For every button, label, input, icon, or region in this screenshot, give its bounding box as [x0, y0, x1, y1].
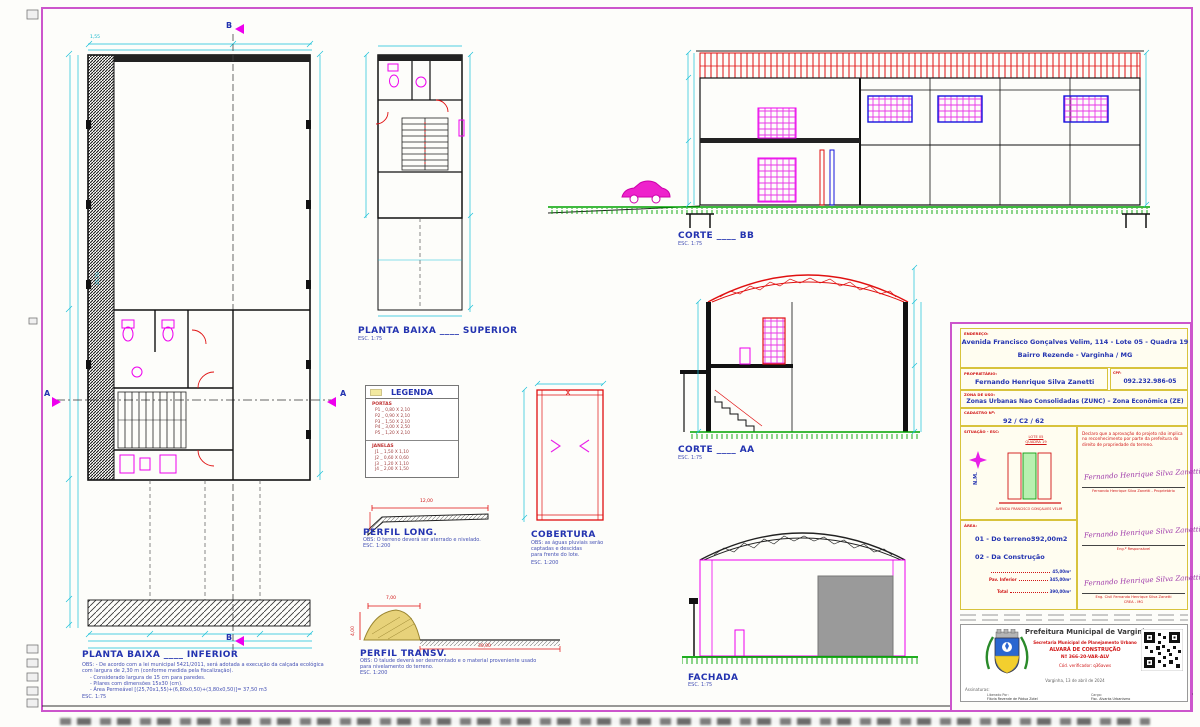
signature-2-caption: Eng.º Responsável — [1078, 547, 1189, 551]
corte-bb-esc: ESC. 1:75 — [678, 242, 702, 247]
alvara-data: Varginha, 13 de abril de 2024 — [1001, 679, 1149, 683]
dim-strip-width: 1,55 — [90, 36, 100, 41]
section-marker-a-right: A — [340, 390, 346, 399]
crest-icon — [985, 629, 1029, 677]
zone-value: Zonas Urbanas Nao Consolidadas (ZUNC) – … — [961, 398, 1189, 405]
qr-code — [1141, 629, 1183, 671]
edge-ticks — [27, 10, 38, 707]
north-label: N.M. — [973, 472, 979, 485]
planta-inferior-obs: com largura de 2,30 m (conforme medida p… — [82, 669, 233, 674]
signature-3: Fernando Henrique Silva Zanetti — [1084, 574, 1183, 587]
planta-inferior-drawing — [52, 24, 336, 650]
section-marker-b-top: B — [226, 22, 232, 31]
legend-janelas-label: JANELAS — [372, 444, 458, 449]
car-icon — [622, 181, 670, 203]
flow-arrows — [551, 440, 589, 452]
alvara-tipo: ALVARÁ DE CONSTRUÇÃO — [1025, 648, 1145, 653]
alvara-secretaria: Secretaria Municipal de Planejamento Urb… — [1025, 641, 1145, 645]
perfil-transv-drawing — [360, 603, 560, 652]
cobertura-drawing — [522, 381, 606, 522]
signature-line — [1082, 487, 1185, 488]
signature-1: Fernando Henrique Silva Zanetti — [1084, 468, 1183, 481]
owner-label: PROPRIETÁRIO: — [964, 371, 997, 376]
fine-print-line — [960, 614, 1188, 616]
foundation-marks — [686, 214, 1150, 228]
signature-line — [1082, 593, 1185, 594]
areas-row-label: Pav. Inferior — [989, 577, 1017, 582]
signature-3-caption-1: Eng. Civil Fernando Henrique Silva Zanet… — [1078, 595, 1189, 599]
alvara-verificador: Cód. verificador: q36avws — [1025, 664, 1145, 668]
fachada-esc: ESC. 1:75 — [688, 683, 712, 688]
legend-row: P5 _ 1,20 X 2,10 — [375, 431, 458, 437]
assinaturas-label: Assinaturas: — [965, 688, 990, 692]
legend-chip — [370, 389, 382, 396]
areas-line-2: 02 - Da Construção — [975, 553, 1045, 561]
areas-row-value: 345,00m² — [1050, 577, 1071, 582]
planta-superior-drawing — [364, 46, 473, 316]
address-box: ENDEREÇO: Avenida Francisco Gonçalves Ve… — [960, 328, 1188, 368]
section-marker-a-left: A — [44, 390, 50, 399]
planta-inferior-title: PLANTA BAIXA ____ INFERIOR — [82, 651, 238, 661]
perfil-transv-dim-top: 7,00 — [386, 597, 396, 602]
areas-line-1-value: 392,00m2 — [1031, 535, 1067, 543]
areas-row: Total390,00m² — [997, 589, 1071, 594]
door-swings — [192, 330, 214, 466]
perfil-transv-dim-h: 4,00 — [352, 626, 357, 636]
signature-1-caption: Fernando Henrique Silva Zanetti - Propri… — [1078, 489, 1189, 493]
signature-2: Fernando Henrique Silva Zanetti — [1084, 526, 1183, 539]
areas-row: Pav. Inferior345,00m² — [989, 577, 1071, 582]
areas-label: ÁREA: — [964, 523, 977, 528]
liberado-value: Flávia Rezende de Pádua Zotel — [987, 698, 1038, 702]
situacao-bottom: AVENIDA FRANCISCO GONÇALVES VELIM — [979, 507, 1079, 511]
alvara-numero: Nº 366-20-VAR-ALV — [1025, 656, 1145, 661]
drawing-sheet: PLANTA BAIXA ____ INFERIOR OBS: - De aco… — [0, 0, 1200, 727]
cobertura-obs: para frente do lote. — [531, 553, 579, 558]
owner-box: PROPRIETÁRIO: Fernando Henrique Silva Za… — [960, 368, 1108, 390]
legend-divider — [366, 440, 458, 441]
situacao-box: SITUAÇÃO - ESC: LOTE 05 QUADRA 19 N.M. A… — [960, 426, 1077, 520]
planta-superior-esc: ESC. 1:75 — [358, 337, 382, 342]
cutoff-text-strip — [60, 718, 1150, 725]
fachada-drawing — [682, 533, 918, 664]
cpf-box: CPF: 092.232.986-05 — [1110, 368, 1188, 390]
corte-bb-drawing — [548, 50, 1150, 228]
cadastro-value: 92 / C2 / 62 — [1003, 417, 1044, 425]
fine-print-line — [960, 619, 1188, 621]
declaration-text: Declaro que a aprovação do projeto não i… — [1082, 431, 1185, 447]
perfil-transv-dim-w: 30,00 — [478, 645, 491, 650]
section-marker-b-bottom: B — [226, 634, 232, 643]
cargo-value: Fisc. Alvarás Urbanismo — [1091, 698, 1130, 702]
legend-portas-label: PORTAS — [372, 402, 458, 407]
corte-aa-drawing — [680, 265, 921, 439]
planta-inferior-esc: ESC. 1:75 — [82, 695, 106, 700]
areas-row: 45,00m² — [989, 569, 1071, 574]
zone-label: ZONA DE USO: — [964, 392, 995, 397]
areas-box: ÁREA: 01 - Do terreno: 392,00m2 02 - Da … — [960, 520, 1077, 610]
perfil-transv-esc: ESC. 1:200 — [360, 671, 387, 676]
cobertura-esc: ESC. 1:200 — [531, 561, 558, 566]
owner-name: Fernando Henrique Silva Zanetti — [975, 378, 1094, 386]
address-line-2: Bairro Rezende - Varginha / MG — [961, 351, 1189, 359]
cadastro-box: CADASTRO Nº: 92 / C2 / 62 — [960, 408, 1188, 426]
signature-3-caption-2: CREA - MG — [1078, 600, 1189, 604]
interior-walls — [114, 310, 310, 480]
areas-row-label: Total — [997, 589, 1008, 594]
cpf-label: CPF: — [1113, 371, 1121, 375]
dim-strip-length: 25,70 — [97, 272, 102, 285]
door — [818, 576, 893, 656]
address-line-1: Avenida Francisco Gonçalves Velim, 114 -… — [961, 338, 1189, 346]
compass-icon — [969, 451, 987, 469]
zone-box: ZONA DE USO: Zonas Urbanas Nao Consolida… — [960, 390, 1188, 408]
areas-row-value: 390,00m² — [1050, 589, 1071, 594]
signature-line — [1082, 545, 1185, 546]
title-block: ENDEREÇO: Avenida Francisco Gonçalves Ve… — [950, 322, 1192, 712]
legend-row: J4 _ 2,00 X 1,50 — [375, 467, 458, 473]
perfil-long-dim: 12,00 — [420, 500, 433, 505]
areas-line-1-label: 01 - Do terreno: — [975, 535, 1033, 543]
windows — [868, 96, 1108, 122]
legend-box: LEGENDA PORTAS P1 _ 0,80 X 2,10 P2 _ 0,9… — [365, 385, 459, 478]
legend-title: LEGENDA — [391, 388, 433, 397]
cadastro-label: CADASTRO Nº: — [964, 410, 995, 415]
alvara-orgao: Prefeitura Municipal de Varginha — [1025, 629, 1145, 636]
planta-inferior-obs: - Área Permeável [(25,70x1,55)+(6,80x0,5… — [90, 688, 267, 693]
legend-title-row: LEGENDA — [366, 386, 458, 399]
alvara-stamp: Prefeitura Municipal de Varginha Secreta… — [960, 624, 1188, 702]
declaration-box: Declaro que a aprovação do projeto não i… — [1077, 426, 1188, 610]
pillars — [86, 120, 311, 439]
corte-aa-esc: ESC. 1:75 — [678, 456, 702, 461]
cpf-value: 092.232.986-05 — [1111, 378, 1189, 385]
perfil-long-esc: ESC. 1:200 — [363, 544, 390, 549]
address-label: ENDEREÇO: — [964, 331, 989, 336]
areas-row-value: 45,00m² — [1052, 569, 1071, 574]
